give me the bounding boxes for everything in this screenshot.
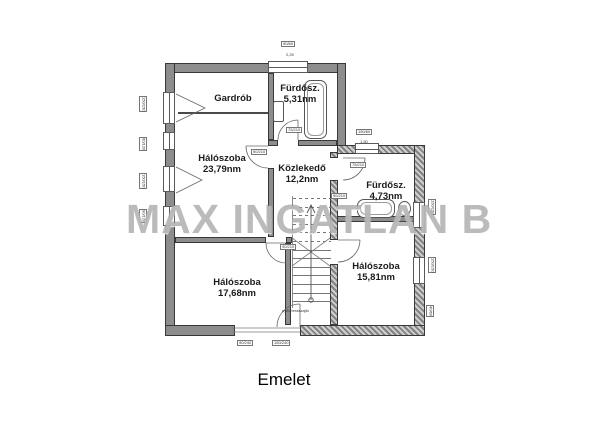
dimension-label: 150/60: [356, 129, 372, 135]
watermark: MAX INGATLAN B: [126, 196, 492, 243]
dimension-label: 150/150: [139, 173, 147, 189]
room-area: 23,79nm: [198, 164, 246, 175]
dimension-label: nyíló teraszajtó: [282, 309, 309, 313]
room-name: Fürdősz.: [366, 180, 406, 191]
room-name: Hálószoba: [352, 261, 400, 272]
room-name: Hálószoba: [213, 277, 261, 288]
room-label-furdo-1: Fürdősz. 5,31nm: [280, 83, 320, 106]
room-name: Hálószoba: [198, 153, 246, 164]
dimension-label: 90/210: [251, 149, 267, 155]
dimension-label: 75/210: [350, 162, 366, 168]
room-label-haloszoba-2: Hálószoba 17,68nm: [213, 277, 261, 300]
dimension-label: 150/150: [139, 96, 147, 112]
dimension-label: 60/120: [139, 137, 147, 151]
dimension-label: 2,25: [286, 53, 294, 57]
dimension-label: 40/60: [426, 305, 434, 317]
room-name: Gardrób: [214, 93, 251, 104]
room-area: 17,68nm: [213, 288, 261, 299]
floor-plan: Gardrób Fürdősz. 5,31nm Hálószoba 23,79n…: [0, 0, 600, 423]
dimension-label: 90/210: [280, 244, 296, 250]
room-area: 15,81nm: [352, 272, 400, 283]
room-name: Közlekedő: [278, 163, 326, 174]
dimension-label: 90/240: [237, 340, 253, 346]
room-name: Fürdősz.: [280, 83, 320, 94]
room-label-haloszoba-1: Hálószoba 23,79nm: [198, 153, 246, 176]
floor-caption: Emelet: [234, 370, 334, 390]
room-label-gardrob: Gardrób: [214, 93, 251, 104]
dimension-label: 150/240: [272, 340, 290, 346]
room-area: 5,31nm: [280, 94, 320, 105]
room-label-kozlekedo: Közlekedő 12,2nm: [278, 163, 326, 186]
room-label-haloszoba-3: Hálószoba 15,81nm: [352, 261, 400, 284]
dimension-label: 75/210: [286, 127, 302, 133]
room-area: 12,2nm: [278, 174, 326, 185]
dimension-label: 1,50: [360, 140, 368, 144]
dimension-label: 90/60: [281, 41, 295, 47]
dimension-label: 150/150: [428, 257, 436, 273]
